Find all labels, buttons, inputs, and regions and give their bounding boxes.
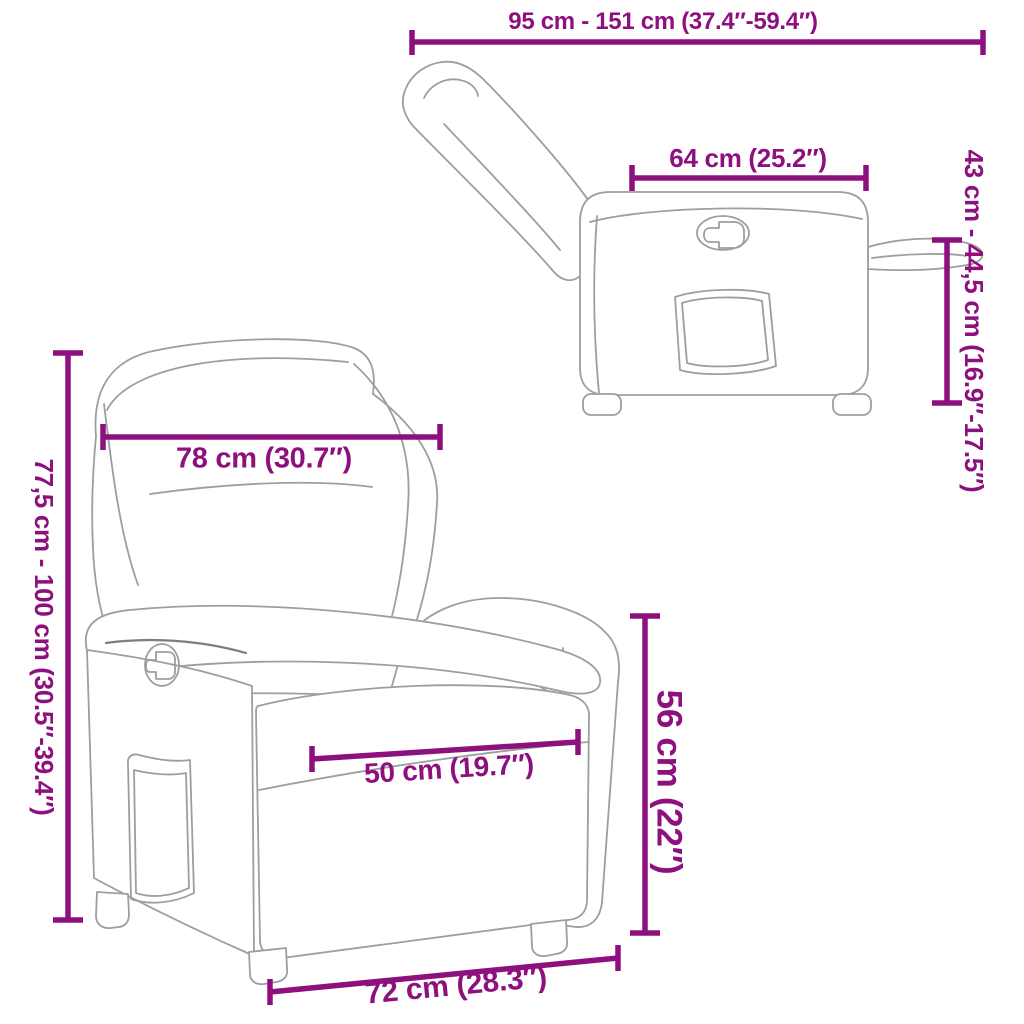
product-dimension-diagram: 95 cm - 151 cm (37.4″-59.4″) 64 cm (25.2… xyxy=(0,0,1024,1024)
reclined-foot-left xyxy=(583,394,621,415)
front-foot-left xyxy=(96,892,129,928)
seat-height-label: 56 cm (22″) xyxy=(652,690,687,875)
back-width-label: 78 cm (30.7″) xyxy=(176,445,352,474)
front-seat xyxy=(256,685,589,958)
diagram-artwork xyxy=(0,0,1024,1024)
reclined-backrest xyxy=(403,62,591,281)
reclined-chair-drawing xyxy=(403,62,982,415)
footrest-height-label: 43 cm - 44,5 cm (16.9″-17.5″) xyxy=(961,150,987,493)
overall-height-label: 77,5 cm - 100 cm (30.5″-39.4″) xyxy=(31,458,57,815)
front-foot-center xyxy=(249,948,287,984)
front-foot-right xyxy=(531,920,567,956)
overall-depth-label: 95 cm - 151 cm (37.4″-59.4″) xyxy=(508,10,817,34)
top-depth-label: 64 cm (25.2″) xyxy=(669,145,826,171)
reclined-foot-right xyxy=(833,394,871,415)
